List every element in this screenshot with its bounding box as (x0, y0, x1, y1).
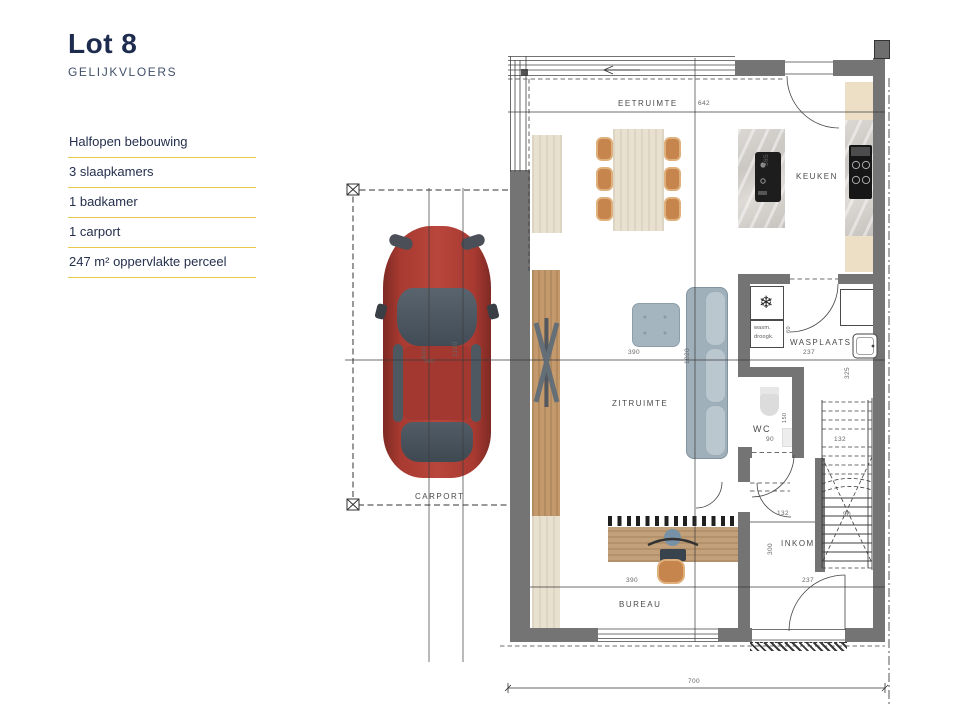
wall-interior (792, 377, 804, 458)
feature-item: 1 carport (68, 219, 256, 248)
wall-right (873, 58, 885, 642)
feature-list: Halfopen bebouwing 3 slaapkamers 1 badka… (68, 129, 256, 279)
car-roof (403, 346, 471, 420)
floorplan-page: Lot 8 GELIJKVLOERS Halfopen bebouwing 3 … (0, 0, 953, 707)
car-mirror (486, 303, 499, 320)
sideboard (532, 135, 562, 233)
dim-642: 642 (698, 100, 710, 107)
dim-237-was: 237 (803, 349, 815, 356)
washer-label: wasm.droogk. (754, 324, 774, 342)
room-label-inkom: INKOM (781, 539, 815, 548)
car-side-window (393, 344, 403, 422)
corner-post (521, 69, 528, 76)
wall-bottom (510, 628, 598, 642)
chimney (874, 40, 890, 59)
dim-150: 150 (782, 413, 788, 423)
dim-132-inkom: 132 (777, 510, 789, 517)
snowflake-icon: ❄ (759, 293, 773, 313)
car-rear-window (401, 422, 473, 462)
wall-interior (738, 447, 752, 458)
wall-bottom (718, 628, 752, 642)
wall-interior (838, 274, 873, 284)
dining-chair (596, 167, 613, 191)
room-label-carport: CARPORT (415, 492, 464, 501)
page-title: Lot 8 (68, 28, 137, 60)
wall-bottom (845, 628, 885, 642)
desk-chair-seat (664, 529, 681, 546)
feature-item: Halfopen bebouwing (68, 129, 256, 158)
dim-390-bureau: 390 (626, 577, 638, 584)
room-label-bureau: BUREAU (619, 600, 661, 609)
room-label-wasplaats: WASPLAATS (790, 338, 852, 347)
dim-700-total: 700 (688, 678, 700, 685)
wall (735, 60, 785, 76)
dim-600-car: 600 (421, 347, 428, 359)
dim-300: 300 (767, 543, 774, 555)
feature-item: 1 badkamer (68, 189, 256, 218)
dim-90-stairs: 90 (843, 511, 851, 518)
dining-chair (664, 167, 681, 191)
kitchen-counter-bottom (845, 236, 873, 272)
feature-item: 247 m² oppervlakte perceel (68, 249, 256, 278)
doormat-hatch (750, 642, 847, 651)
toilet-tank (760, 387, 779, 394)
dim-132-stairs: 132 (834, 436, 846, 443)
wall (833, 60, 875, 76)
room-label-zitruimte: ZITRUIMTE (612, 399, 668, 408)
sofa-cushion (705, 405, 726, 456)
wall-interior (738, 512, 750, 628)
dim-390-zit: 390 (628, 349, 640, 356)
wall-interior (738, 458, 750, 482)
dim-1020: 1020 (684, 348, 691, 364)
wall-interior (738, 367, 804, 377)
dining-chair (596, 137, 613, 161)
dim-90-wc: 90 (766, 436, 774, 443)
dim-325: 325 (844, 367, 851, 379)
tv-cabinet (532, 270, 560, 516)
dining-chair (664, 137, 681, 161)
dining-chair (596, 197, 613, 221)
dim-60: 60 (786, 326, 792, 333)
wall-left (510, 170, 530, 628)
office-chair (657, 559, 685, 584)
feature-item: 3 slaapkamers (68, 159, 256, 188)
car-windshield (397, 288, 477, 346)
floor-subtitle: GELIJKVLOERS (68, 65, 177, 79)
car-side-window (471, 344, 481, 422)
window-bottom (598, 628, 718, 642)
dim-1100-car: 1100 (452, 341, 459, 357)
dim-340-car: 340 (424, 359, 434, 365)
backdoor-opening (785, 60, 833, 76)
dim-365: 365 (763, 154, 770, 166)
desk-shelf-row (608, 516, 740, 526)
wall-stairs (815, 458, 825, 572)
freezer: ❄ (750, 286, 784, 320)
dining-table (613, 129, 664, 231)
wall-interior (750, 274, 790, 284)
washer-dryer: wasm.droogk. (750, 320, 784, 348)
sofa-cushion (705, 348, 726, 403)
bureau-cabinet (532, 516, 560, 628)
window-top (508, 56, 735, 76)
sofa-cushion (705, 291, 726, 346)
dining-chair (664, 197, 681, 221)
frontdoor-opening (752, 628, 845, 642)
ottoman (632, 303, 680, 347)
room-label-keuken: KEUKEN (796, 172, 838, 181)
wall-interior (738, 274, 750, 372)
room-label-eetruimte: EETRUIMTE (618, 99, 678, 108)
car (383, 226, 491, 478)
stove (849, 145, 872, 199)
room-label-wc: WC (753, 424, 771, 434)
stairs (822, 398, 872, 570)
kitchen-counter-top (845, 82, 873, 120)
dim-237-inkom: 237 (802, 577, 814, 584)
